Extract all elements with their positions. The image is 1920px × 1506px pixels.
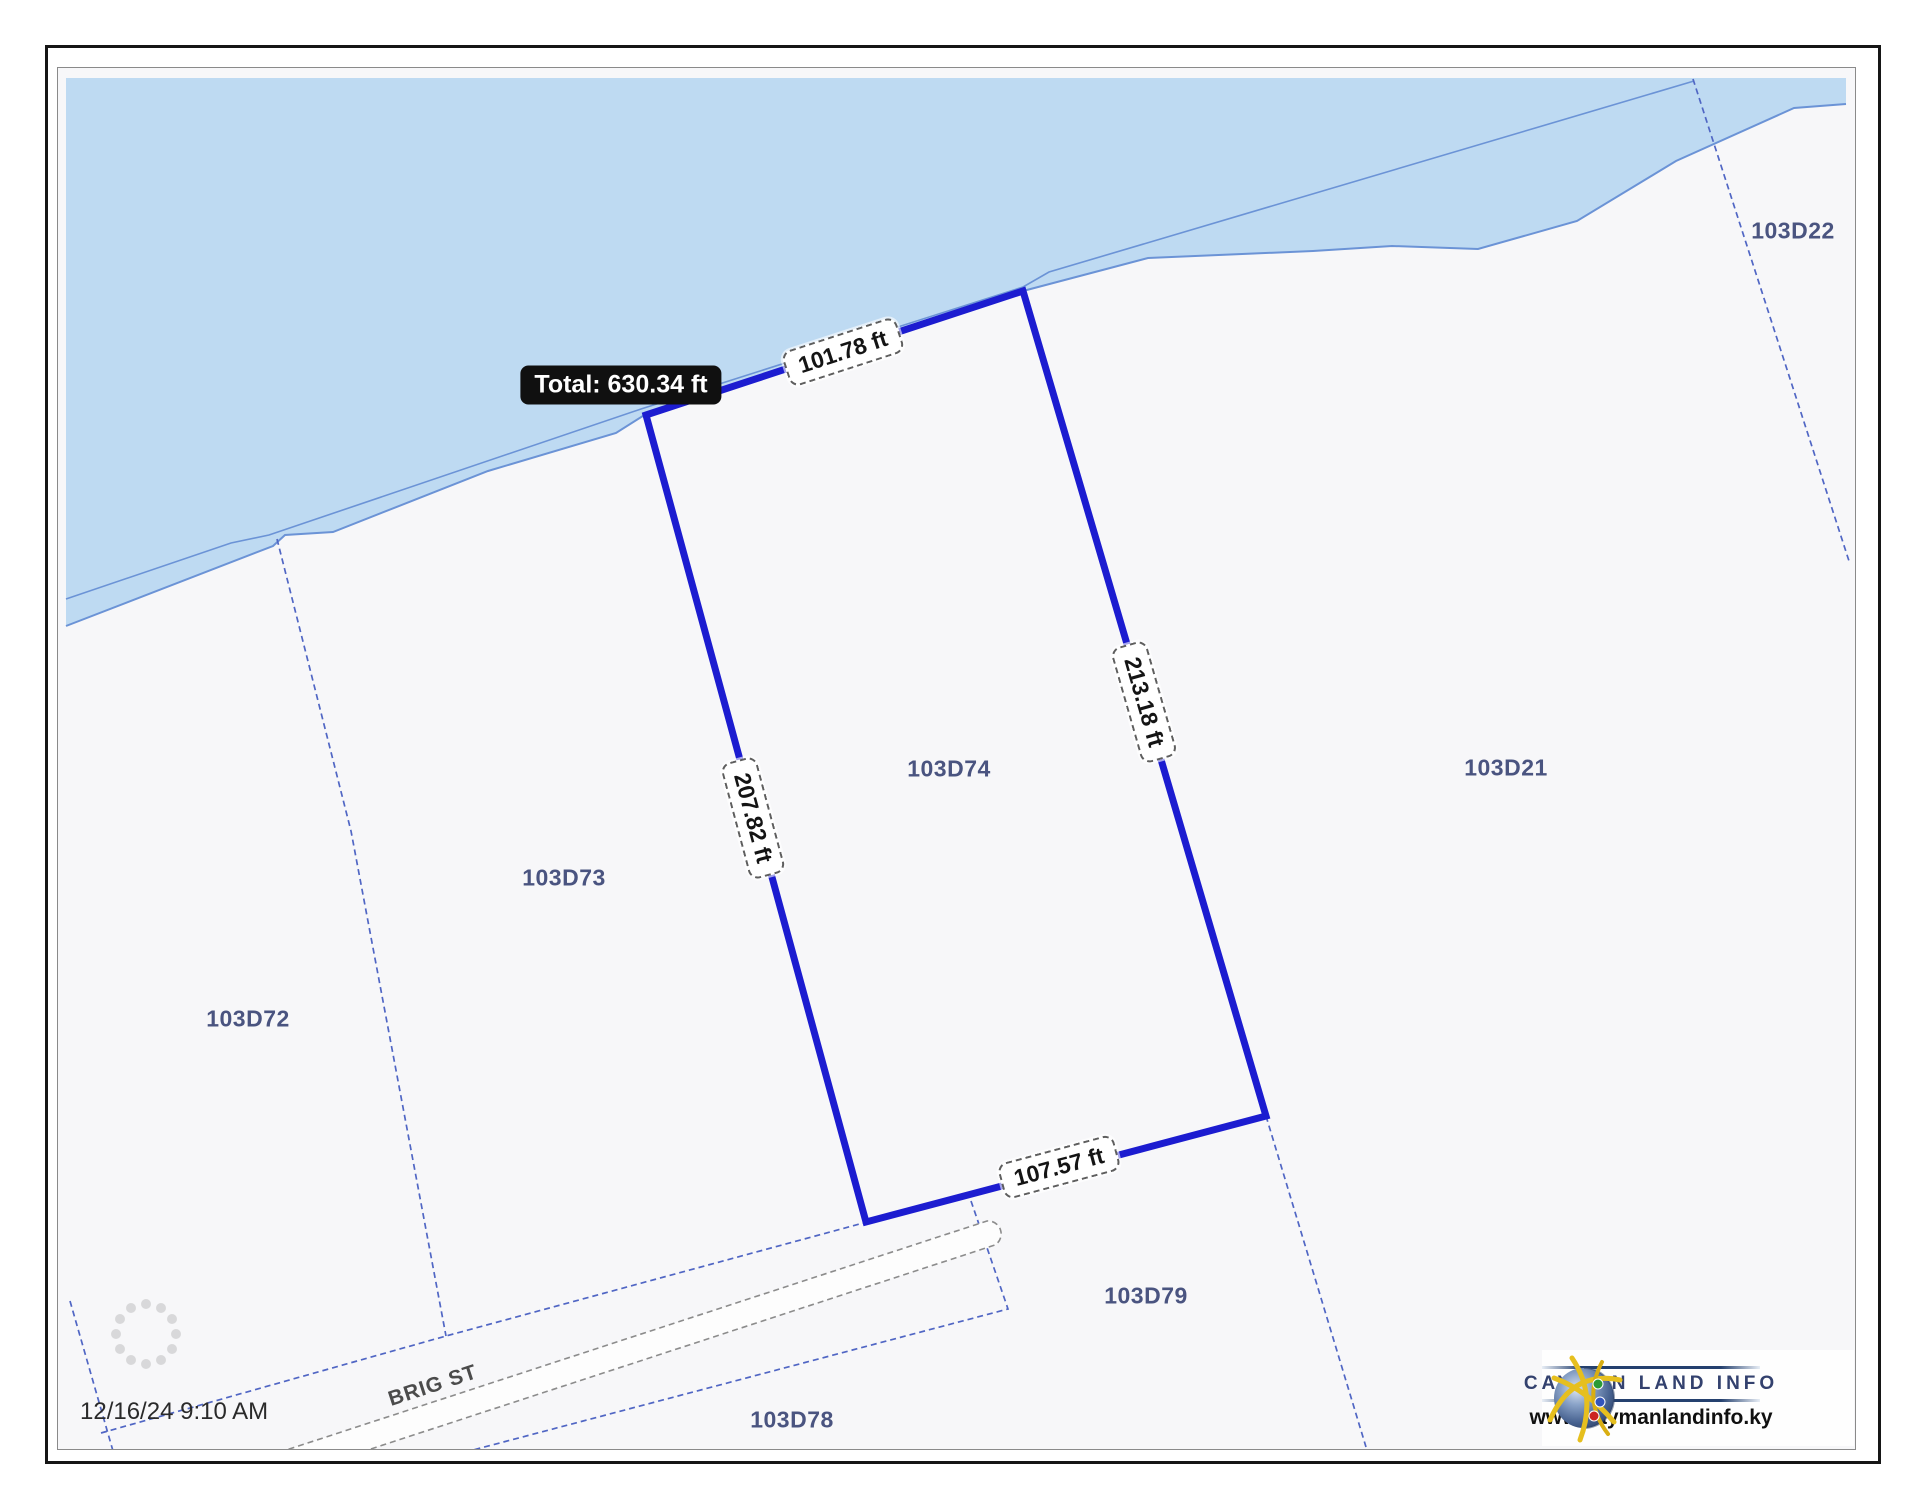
boundary-103d79-103d21 bbox=[1266, 1116, 1366, 1447]
parcel-label-103d79: 103D79 bbox=[1104, 1283, 1188, 1310]
water-area bbox=[66, 78, 1846, 626]
boundary-103d22-west bbox=[1693, 79, 1849, 561]
cadastral-map-page: { "map": { "timestamp": "12/16/24 9:10 A… bbox=[0, 0, 1920, 1506]
boundary-bottom-left bbox=[70, 1301, 113, 1449]
parcel-label-103d21: 103D21 bbox=[1464, 755, 1548, 782]
parcel-label-103d22: 103D22 bbox=[1751, 218, 1835, 245]
map-viewport[interactable]: 103D72 103D73 103D74 103D21 103D22 103D7… bbox=[57, 67, 1856, 1450]
cayman-land-info-logo: CAYMAN LAND INFO www.caymanlandinfo.ky bbox=[1542, 1350, 1854, 1446]
parcel-label-103d72: 103D72 bbox=[206, 1006, 290, 1033]
parcel-label-103d73: 103D73 bbox=[522, 865, 606, 892]
parcel-label-103d74: 103D74 bbox=[907, 756, 991, 783]
total-measurement-tooltip: Total: 630.34 ft bbox=[520, 366, 721, 405]
road-brig-st bbox=[216, 1221, 1001, 1449]
boundary-103d72-103d73 bbox=[277, 539, 446, 1336]
parcel-label-103d78: 103D78 bbox=[750, 1407, 834, 1434]
timestamp: 12/16/24 9:10 AM bbox=[80, 1398, 268, 1426]
watermark-dot-ring bbox=[111, 1299, 181, 1369]
globe-icon bbox=[1542, 1350, 1632, 1446]
